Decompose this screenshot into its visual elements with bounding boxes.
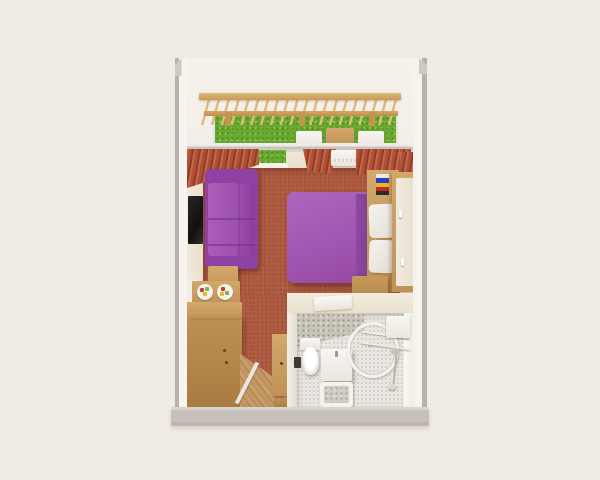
- dresser-front: [186, 320, 242, 407]
- plate-left: [197, 284, 213, 300]
- shower-mixer: [391, 350, 399, 354]
- ac-unit: [331, 150, 359, 166]
- shower-tray-inner: [324, 386, 349, 403]
- dresser-top: [186, 302, 242, 320]
- towel: [314, 295, 353, 312]
- pergola-beam-top: [199, 93, 401, 100]
- pergola-post-center: [299, 112, 305, 126]
- waste-bin: [294, 357, 301, 368]
- food-yellow: [203, 292, 207, 296]
- sofa-seam: [208, 244, 255, 246]
- hall-cabinet-knob: [280, 362, 283, 365]
- food-yellow: [220, 292, 224, 296]
- right-wall: [413, 58, 427, 410]
- toilet-bowl: [302, 347, 319, 375]
- wardrobe-handle: [401, 258, 404, 266]
- floor-plan-canvas[interactable]: [0, 0, 600, 480]
- tv: [188, 196, 203, 244]
- boiler-box: [386, 316, 410, 338]
- window-hedge-view: [255, 150, 286, 164]
- shower-head: [388, 384, 397, 390]
- dresser-knob: [225, 361, 228, 364]
- pergola-post-left: [225, 112, 231, 126]
- wardrobe-handle: [399, 210, 402, 218]
- left-wall: [175, 58, 187, 410]
- plate-right: [217, 284, 233, 300]
- book-black: [376, 191, 389, 195]
- sofa-seam: [208, 218, 255, 220]
- vanity-faucet: [335, 351, 338, 357]
- food-green: [225, 291, 229, 295]
- food-green: [205, 287, 209, 291]
- bottom-wall: [171, 407, 429, 426]
- dresser-knob: [223, 349, 226, 352]
- ac-vent: [334, 159, 356, 162]
- pergola-post-right: [369, 112, 375, 126]
- book-stack: [376, 174, 389, 195]
